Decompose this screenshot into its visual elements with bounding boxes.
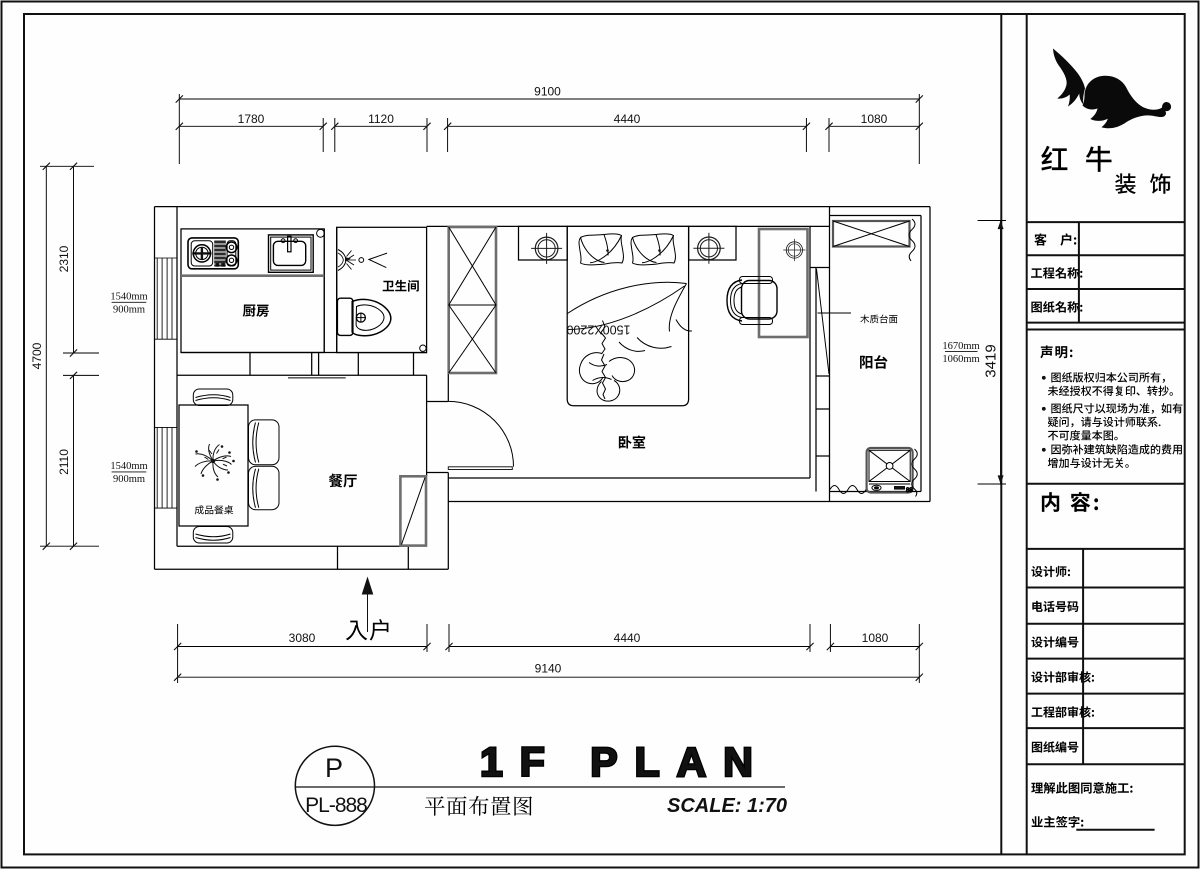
svg-text:PL-888: PL-888 bbox=[305, 794, 367, 817]
svg-text:4440: 4440 bbox=[614, 112, 641, 126]
svg-text:1670mm: 1670mm bbox=[942, 341, 979, 352]
svg-text:2110: 2110 bbox=[57, 449, 71, 475]
svg-text:2310: 2310 bbox=[57, 245, 71, 272]
svg-text:900mm: 900mm bbox=[113, 474, 145, 485]
svg-text:1080: 1080 bbox=[861, 112, 888, 126]
svg-text:1500X2200: 1500X2200 bbox=[566, 323, 630, 337]
svg-text:900mm: 900mm bbox=[113, 305, 145, 316]
svg-text:1060mm: 1060mm bbox=[942, 354, 979, 365]
svg-text:4700: 4700 bbox=[30, 342, 44, 369]
svg-text:3080: 3080 bbox=[289, 631, 316, 645]
svg-text:SCALE: 1:70: SCALE: 1:70 bbox=[667, 795, 787, 817]
svg-text:P: P bbox=[325, 753, 343, 783]
svg-text:9100: 9100 bbox=[534, 85, 561, 99]
svg-text:1120: 1120 bbox=[368, 112, 394, 126]
svg-text:1080: 1080 bbox=[862, 631, 889, 645]
svg-text:1780: 1780 bbox=[238, 112, 265, 126]
svg-text:88: 88 bbox=[906, 488, 913, 494]
svg-text:1540mm: 1540mm bbox=[110, 292, 147, 303]
svg-text:3419: 3419 bbox=[983, 344, 1000, 377]
svg-text:4440: 4440 bbox=[614, 631, 641, 645]
svg-text:9140: 9140 bbox=[535, 662, 562, 676]
svg-text:1540mm: 1540mm bbox=[110, 461, 147, 472]
svg-text:1F PLAN: 1F PLAN bbox=[480, 739, 770, 785]
